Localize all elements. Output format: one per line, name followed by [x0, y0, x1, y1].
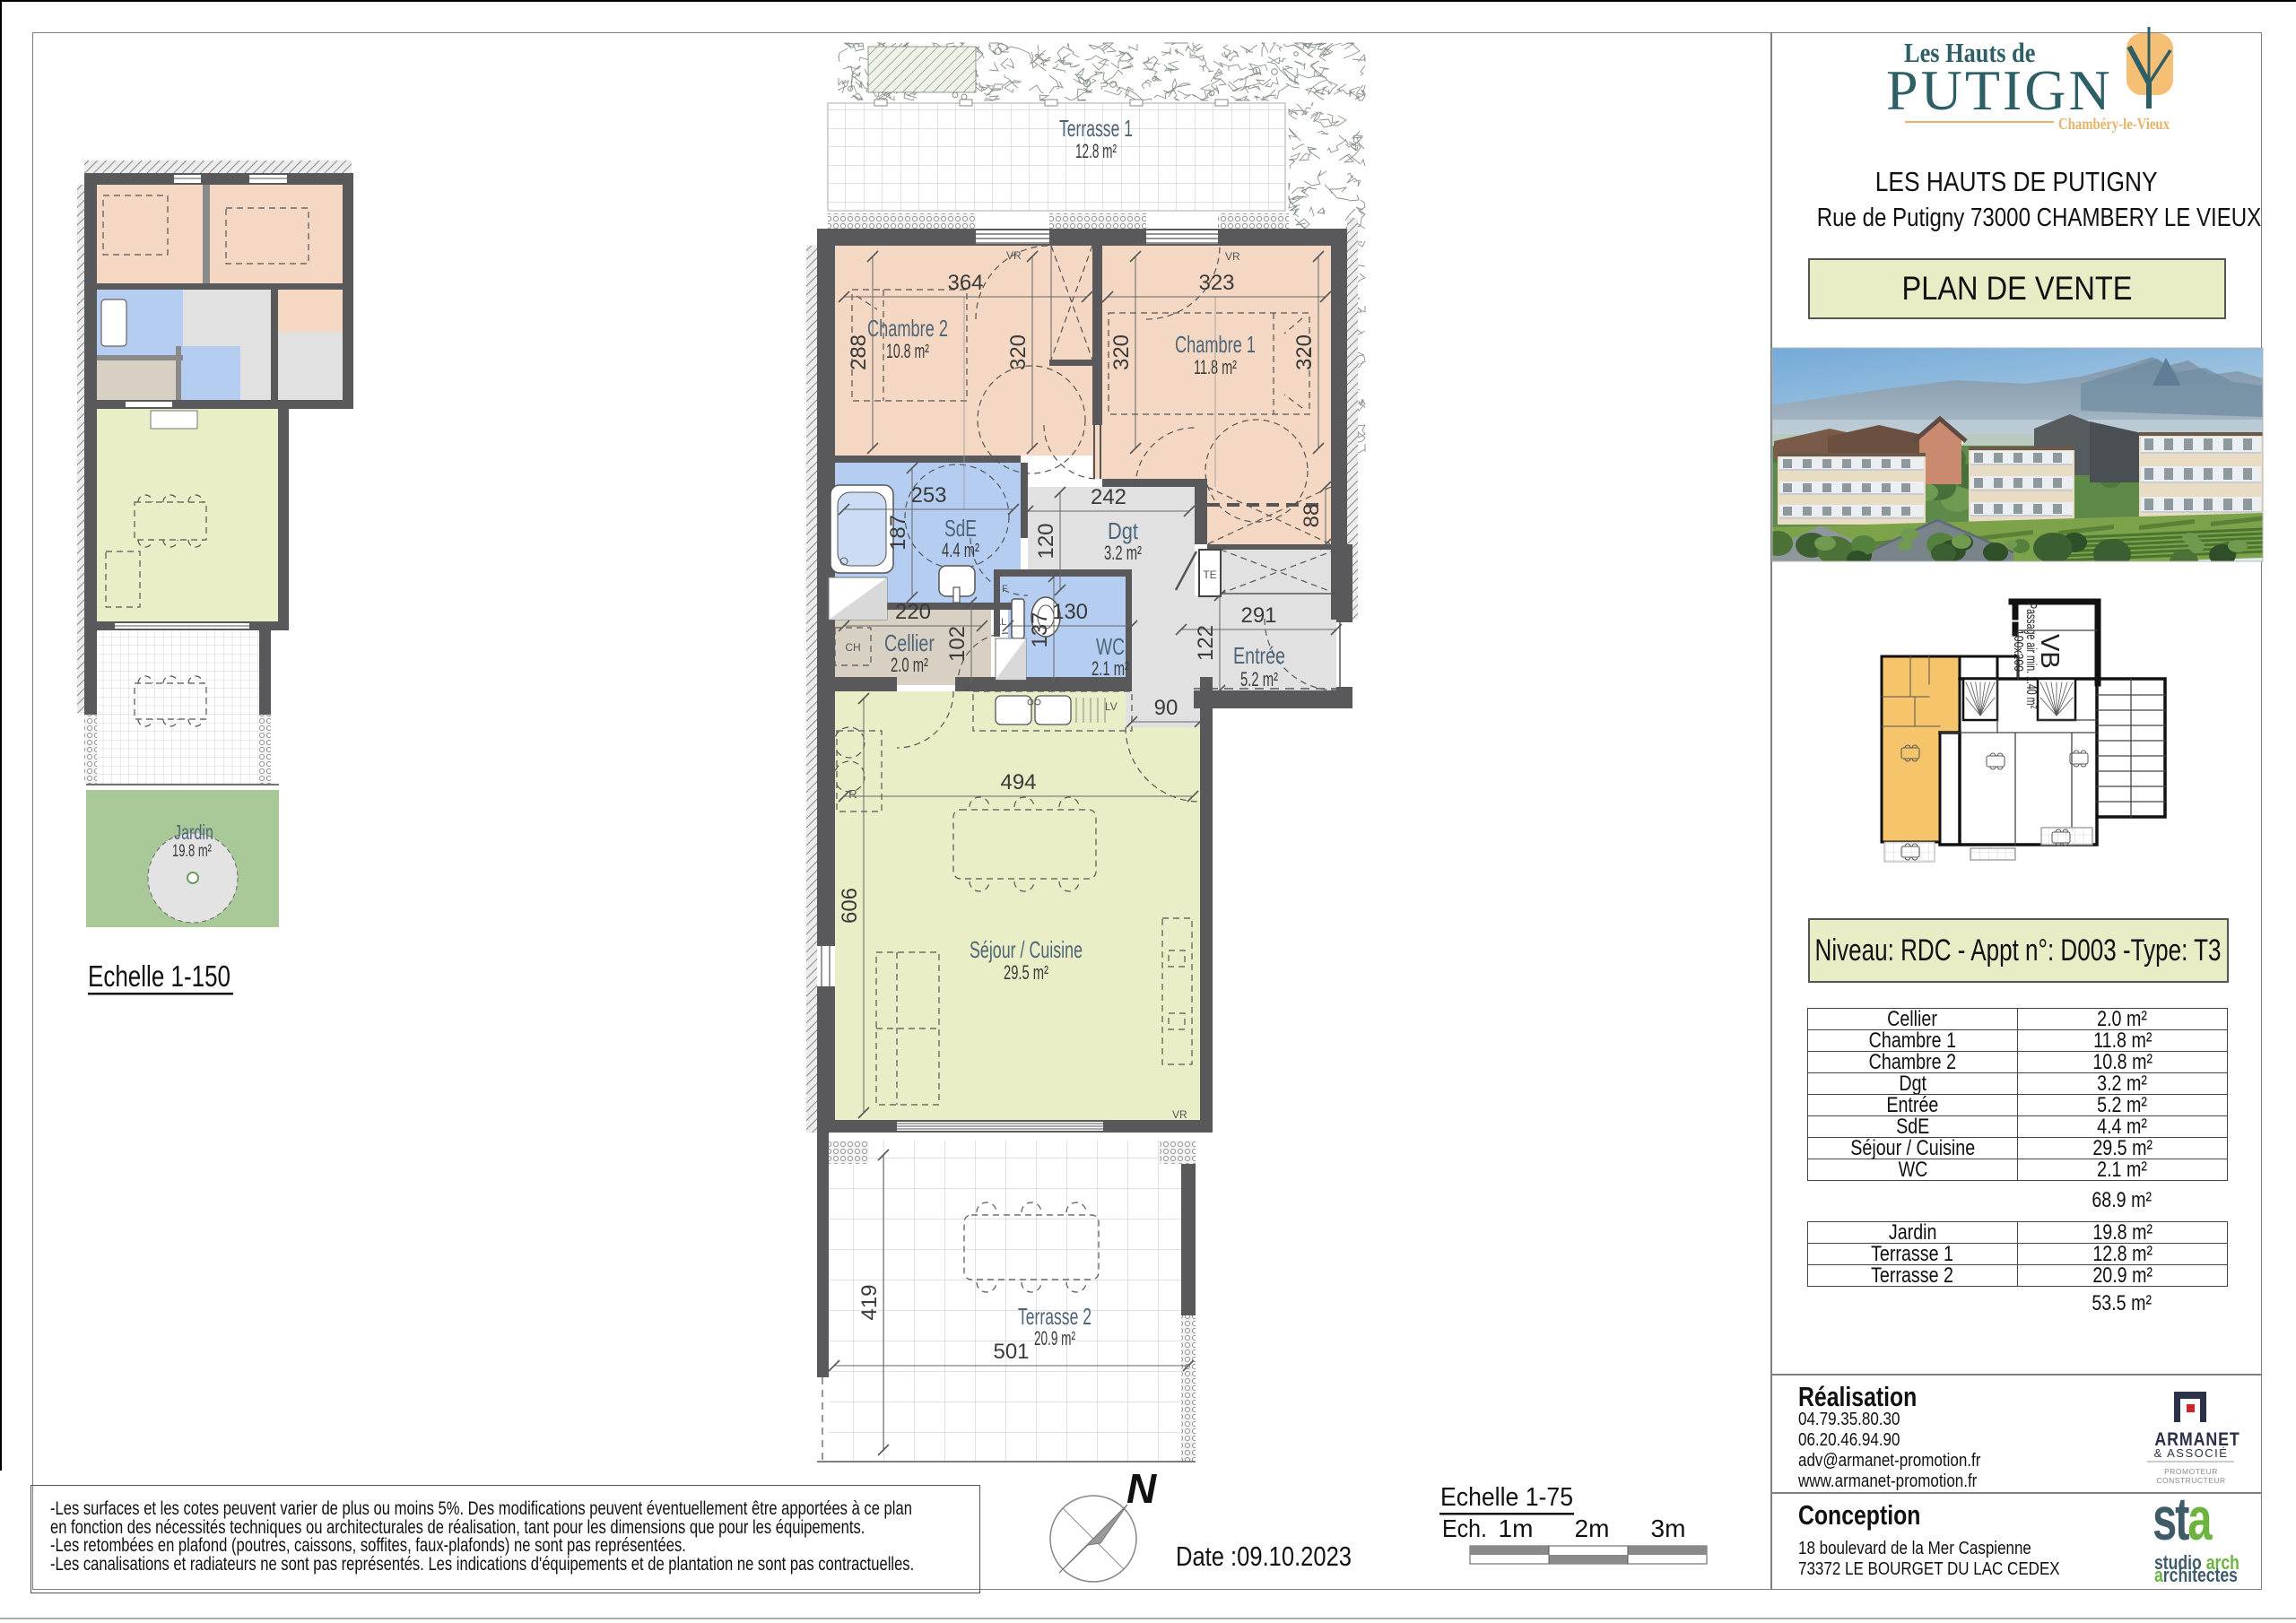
- svg-text:Cellier: Cellier: [884, 629, 935, 656]
- svg-text:130: 130: [1052, 600, 1088, 624]
- svg-text:10.8 m²: 10.8 m²: [886, 340, 929, 362]
- svg-text:419: 419: [857, 1284, 882, 1320]
- svg-text:320: 320: [1006, 334, 1031, 370]
- svg-text:Dgt: Dgt: [1108, 517, 1139, 544]
- svg-text:3.2 m²: 3.2 m²: [1104, 542, 1142, 564]
- svg-text:VR: VR: [1225, 250, 1240, 263]
- svg-text:4.4 m²: 4.4 m²: [942, 539, 979, 561]
- svg-text:5.2 m²: 5.2 m²: [1240, 668, 1278, 690]
- svg-text:494: 494: [1000, 770, 1036, 794]
- svg-text:Date :09.10.2023: Date :09.10.2023: [1176, 1541, 1352, 1572]
- svg-text:320: 320: [1109, 334, 1134, 370]
- svg-text:288: 288: [847, 334, 871, 370]
- svg-text:137: 137: [1028, 612, 1052, 647]
- svg-text:Ech.: Ech.: [1442, 1515, 1487, 1542]
- svg-text:220: 220: [895, 600, 931, 624]
- svg-text:2.1 m²: 2.1 m²: [1091, 657, 1129, 680]
- svg-text:F: F: [1002, 584, 1008, 595]
- svg-text:606: 606: [838, 888, 862, 924]
- svg-text:3m: 3m: [1651, 1515, 1686, 1542]
- svg-text:Terrasse 2: Terrasse 2: [1018, 1303, 1091, 1330]
- svg-text:2.0 m²: 2.0 m²: [891, 654, 928, 676]
- svg-text:Chambre 2: Chambre 2: [867, 315, 948, 342]
- svg-text:12.8 m²: 12.8 m²: [1075, 140, 1117, 162]
- svg-text:Jardin: Jardin: [174, 820, 213, 844]
- svg-text:501: 501: [993, 1340, 1029, 1364]
- svg-text:Séjour / Cuisine: Séjour / Cuisine: [970, 936, 1083, 963]
- svg-text:323: 323: [1198, 271, 1234, 295]
- svg-text:Terrasse 1: Terrasse 1: [1059, 115, 1133, 142]
- svg-text:WC: WC: [1096, 633, 1125, 660]
- svg-text:Entrée: Entrée: [1233, 642, 1285, 669]
- svg-text:Echelle 1-150: Echelle 1-150: [88, 959, 230, 993]
- svg-text:88: 88: [1300, 504, 1324, 528]
- svg-text:VR: VR: [1006, 249, 1022, 262]
- svg-text:364: 364: [947, 271, 983, 295]
- svg-text:102: 102: [945, 626, 970, 662]
- svg-text:VR: VR: [1172, 1108, 1187, 1121]
- svg-text:19.8 m²: 19.8 m²: [172, 842, 212, 861]
- svg-text:187: 187: [886, 515, 910, 551]
- svg-text:SdE: SdE: [944, 515, 977, 542]
- svg-text:CH: CH: [845, 641, 860, 654]
- svg-text:122: 122: [1194, 625, 1218, 661]
- svg-text:LL: LL: [996, 617, 1006, 628]
- svg-text:LV: LV: [1105, 700, 1118, 713]
- svg-text:Echelle 1-75: Echelle 1-75: [1440, 1483, 1573, 1512]
- svg-text:242: 242: [1091, 485, 1126, 509]
- svg-text:1m: 1m: [1499, 1515, 1534, 1542]
- svg-text:20.9 m²: 20.9 m²: [1034, 1327, 1075, 1350]
- svg-text:2m: 2m: [1575, 1515, 1610, 1542]
- svg-text:253: 253: [910, 483, 946, 508]
- svg-text:90: 90: [1154, 696, 1178, 720]
- svg-text:120: 120: [1034, 523, 1058, 559]
- svg-text:29.5 m²: 29.5 m²: [1004, 961, 1048, 984]
- svg-text:N: N: [1126, 1465, 1157, 1512]
- svg-text:TE: TE: [1203, 568, 1216, 581]
- svg-text:R: R: [848, 787, 857, 801]
- svg-text:320: 320: [1292, 334, 1317, 370]
- svg-text:291: 291: [1240, 603, 1276, 628]
- svg-text:Niveau: RDC - Appt n°: D003 -T: Niveau: RDC - Appt n°: D003 -Type: T3: [1815, 933, 2222, 968]
